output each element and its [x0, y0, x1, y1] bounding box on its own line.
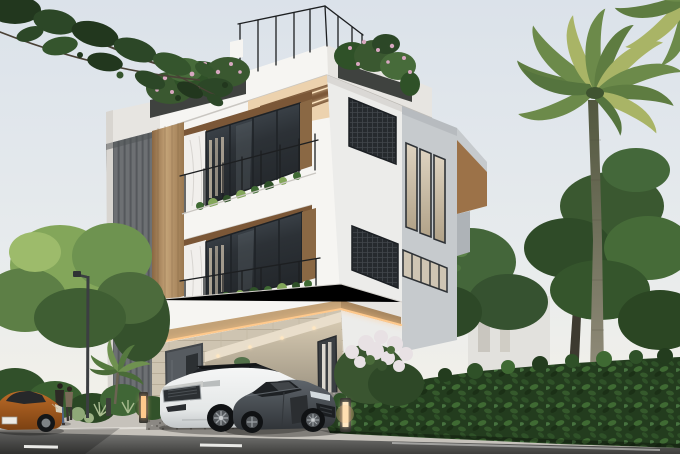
bollard-light-left	[139, 392, 148, 423]
wood-column	[152, 122, 184, 305]
sportscar-rear-wheel	[241, 411, 263, 433]
bollard-glow-panel	[141, 396, 146, 418]
lamp-head	[73, 271, 81, 277]
marble-panel	[184, 130, 206, 212]
suv-front-wheel	[207, 404, 235, 432]
license-plate	[2, 417, 17, 424]
sportscar-front-wheel	[301, 408, 325, 432]
roof-box	[230, 39, 243, 60]
bollard-dark	[106, 398, 111, 416]
round-shrub	[71, 407, 85, 421]
scene-canvas	[0, 0, 680, 454]
right-tall-windows	[406, 143, 445, 243]
architectural-render	[0, 0, 680, 454]
